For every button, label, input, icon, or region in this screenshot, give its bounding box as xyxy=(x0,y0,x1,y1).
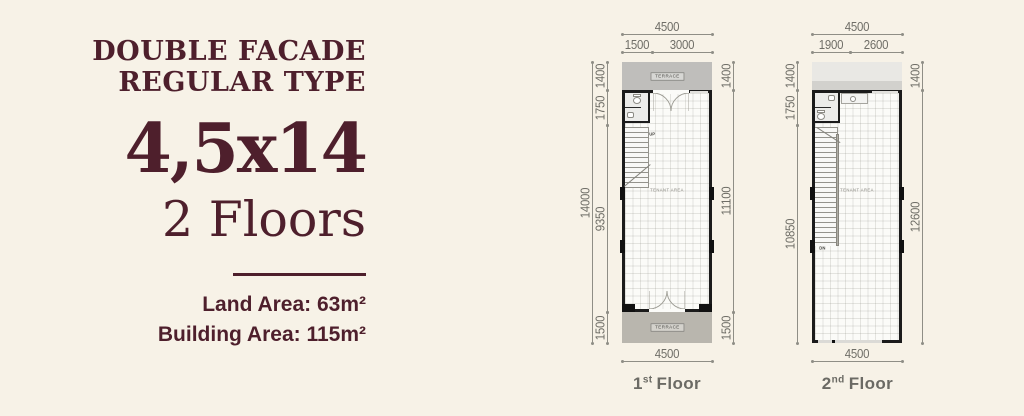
dim-label: 1400 xyxy=(719,64,734,88)
dim-left-seg3: 10850 xyxy=(797,125,798,343)
bathroom-wall xyxy=(625,107,641,108)
dim-bottom: 4500 xyxy=(812,361,902,362)
pantry-counter xyxy=(841,93,868,104)
dim-label: 10850 xyxy=(783,219,798,249)
window-strip xyxy=(690,91,708,94)
wall-pillar xyxy=(810,240,815,253)
dim-top-total: 4500 xyxy=(622,34,712,35)
terrace-top: TERRACE xyxy=(622,62,712,90)
floor-ordinal: st xyxy=(643,374,653,385)
dim-label: 1750 xyxy=(783,95,798,119)
dim-right-seg1: 1400 xyxy=(922,62,923,90)
title-line-2: REGULAR TYPE xyxy=(60,67,366,98)
stairs-up xyxy=(625,127,649,188)
stair-direction-label: DN xyxy=(819,247,825,251)
dim-right-seg2: 11100 xyxy=(733,90,734,312)
dim-left-seg3: 9350 xyxy=(607,125,608,312)
wall-pillar xyxy=(620,240,625,253)
dim-label: 1750 xyxy=(593,95,608,119)
terrace-label: TERRACE xyxy=(650,323,684,331)
floor-word: Floor xyxy=(849,374,894,393)
building-outline xyxy=(622,90,712,312)
window-strip xyxy=(818,340,882,343)
wall-pillar xyxy=(899,240,904,253)
divider-line xyxy=(233,273,366,276)
dim-left-seg4: 1500 xyxy=(607,312,608,343)
dim-label: 1500 xyxy=(625,37,649,52)
sink-icon xyxy=(627,112,634,118)
dim-label: 4500 xyxy=(655,19,679,34)
bathroom xyxy=(815,93,840,123)
mullion-block xyxy=(832,340,835,343)
dim-label: 4500 xyxy=(845,19,869,34)
floor-number: 1 xyxy=(633,374,643,393)
dim-left-seg2: 1750 xyxy=(607,90,608,125)
dim-label: 1500 xyxy=(719,315,734,339)
floor-number: 2 xyxy=(822,374,832,393)
terrace-label: TERRACE xyxy=(650,72,684,80)
dim-right-seg2: 12600 xyxy=(922,90,923,343)
page: { "colors": { "background": "#f7f2e7", "… xyxy=(0,0,1024,416)
double-door-icon xyxy=(649,291,685,309)
title-line-1: DOUBLE FACADE xyxy=(60,36,366,67)
dim-label: 1500 xyxy=(593,315,608,339)
dim-label: 1900 xyxy=(819,37,843,52)
wall-pillar xyxy=(709,187,714,200)
building-area: Building Area: 115m² xyxy=(60,320,366,350)
window-strip xyxy=(872,91,898,94)
land-area: Land Area: 63m² xyxy=(60,290,366,320)
dim-label: 14000 xyxy=(578,187,593,217)
corner-block xyxy=(622,304,635,312)
sink-icon xyxy=(828,95,835,101)
bathroom-wall xyxy=(815,107,831,108)
tenant-area-label: TENANT AREA xyxy=(636,189,699,193)
first-floor-plan: 4500 1500 3000 14000 1400 1750 9350 1500… xyxy=(560,0,800,416)
dim-top-seg1: 1500 xyxy=(622,52,652,53)
wall-pillar xyxy=(810,187,815,200)
dim-top-total: 4500 xyxy=(812,34,902,35)
dim-label: 2600 xyxy=(864,37,888,52)
stairs-down xyxy=(815,127,838,246)
first-floor-caption: 1stFloor xyxy=(582,374,752,394)
double-door-icon xyxy=(653,93,689,111)
sink-icon xyxy=(850,96,856,102)
corner-block xyxy=(699,304,712,312)
tenant-area-label: TENANT AREA xyxy=(826,189,889,193)
dim-right-seg1: 1400 xyxy=(733,62,734,90)
dim-label: 1400 xyxy=(908,64,923,88)
dim-right-seg3: 1500 xyxy=(733,312,734,343)
dim-label: 1400 xyxy=(593,64,608,88)
dim-left-seg1: 1400 xyxy=(797,62,798,90)
dim-label: 1400 xyxy=(783,64,798,88)
toilet-icon xyxy=(817,113,825,120)
roof-strip xyxy=(812,62,902,90)
stair-direction-label: UP xyxy=(649,133,655,137)
floor-word: Floor xyxy=(657,374,702,393)
second-floor-plan: 4500 1900 2600 1400 1750 10850 1400 1260… xyxy=(780,0,1020,416)
second-floor-caption: 2ndFloor xyxy=(780,374,935,394)
dim-label: 12600 xyxy=(908,201,923,231)
dim-left-seg1: 1400 xyxy=(607,62,608,90)
dim-top-seg2: 3000 xyxy=(652,52,712,53)
dim-left-seg2: 1750 xyxy=(797,90,798,125)
dim-top-seg2: 2600 xyxy=(850,52,902,53)
floor-count: 2 Floors xyxy=(60,192,366,248)
dim-label: 9350 xyxy=(593,206,608,230)
floor-ordinal: nd xyxy=(832,374,845,385)
roof-edge xyxy=(812,81,902,90)
wall-pillar xyxy=(899,187,904,200)
wall-pillar xyxy=(709,240,714,253)
dim-label: 3000 xyxy=(670,37,694,52)
dim-label: 11100 xyxy=(719,187,734,216)
dim-top-seg1: 1900 xyxy=(812,52,850,53)
dim-label: 4500 xyxy=(655,346,679,361)
toilet-icon xyxy=(633,97,641,104)
terrace-bottom: TERRACE xyxy=(622,312,712,343)
info-block: DOUBLE FACADE REGULAR TYPE 4,5x14 2 Floo… xyxy=(60,36,366,350)
wall-pillar xyxy=(620,187,625,200)
dim-label: 4500 xyxy=(845,346,869,361)
dim-bottom: 4500 xyxy=(622,361,712,362)
bathroom xyxy=(625,93,650,123)
plan-title: DOUBLE FACADE REGULAR TYPE xyxy=(60,36,366,98)
lot-size: 4,5x14 xyxy=(60,112,366,186)
